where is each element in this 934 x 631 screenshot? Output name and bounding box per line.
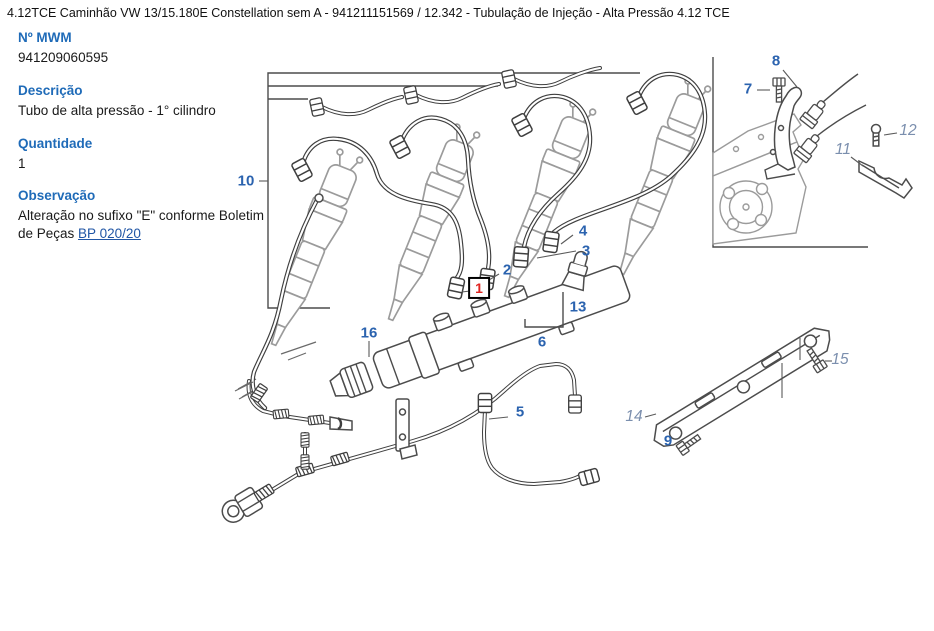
bolt-12 (872, 125, 881, 147)
speed-sensor-upper (800, 97, 830, 129)
part-callout-12[interactable]: 12 (899, 122, 916, 140)
part-callout-8[interactable]: 8 (772, 53, 780, 70)
parts-exploded-diagram (0, 0, 934, 631)
part-callout-2[interactable]: 2 (503, 262, 511, 279)
part-callout-1[interactable]: 1 (468, 277, 490, 299)
injector-4 (605, 76, 715, 281)
part-callout-5[interactable]: 5 (516, 404, 524, 421)
part-callout-11[interactable]: 11 (835, 141, 851, 159)
part-callout-9[interactable]: 9 (664, 433, 672, 450)
mounting-bracket-14 (648, 322, 837, 455)
part-callout-14[interactable]: 14 (625, 408, 642, 426)
part-callout-15[interactable]: 15 (831, 351, 848, 369)
part-callout-3[interactable]: 3 (582, 243, 590, 260)
part-callout-13[interactable]: 13 (570, 299, 587, 316)
low-pressure-tube-assembly (218, 364, 582, 527)
part-callout-16[interactable]: 16 (361, 325, 378, 342)
upper-return-tubes (309, 68, 600, 117)
part-callout-4[interactable]: 4 (579, 223, 587, 240)
part-callout-6[interactable]: 6 (538, 334, 546, 351)
parts-catalog-page: { "header": { "title": "4.12TCE Caminhão… (0, 0, 934, 631)
part-callout-10[interactable]: 10 (238, 173, 255, 190)
bolt-7 (773, 78, 785, 102)
part-callout-7[interactable]: 7 (744, 81, 752, 98)
